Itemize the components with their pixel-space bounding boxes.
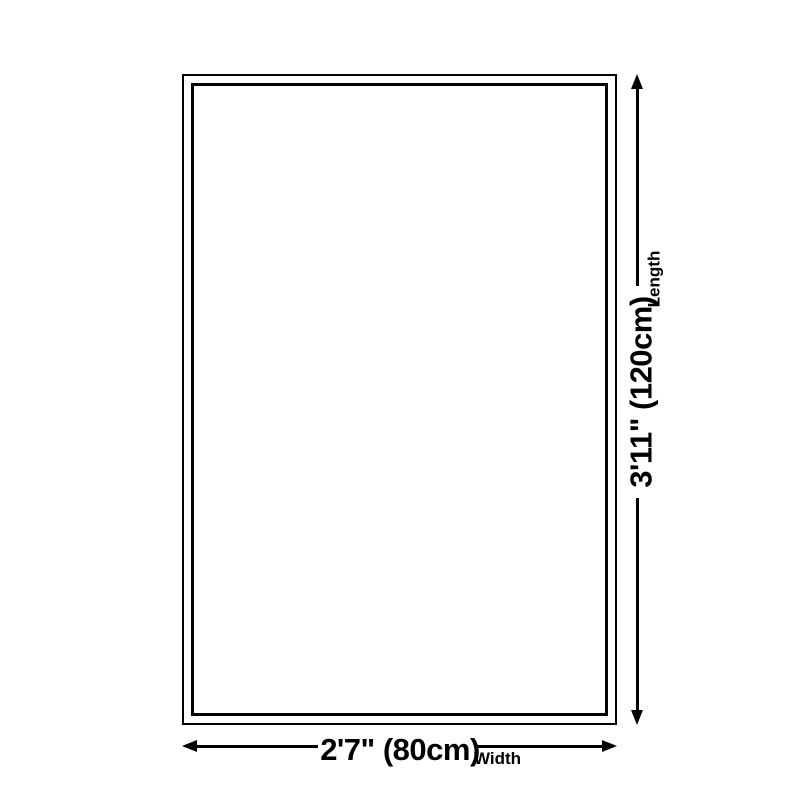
length-arrow-line-top bbox=[636, 86, 639, 286]
dimension-diagram: 3'11" (120cm) Length 2'7" (80cm) Width bbox=[0, 0, 800, 800]
width-value-label: 2'7" (80cm) bbox=[320, 734, 480, 765]
length-caption-label: Length bbox=[646, 251, 663, 308]
length-value-label: 3'11" (120cm) bbox=[626, 296, 657, 487]
width-caption-label: Width bbox=[474, 750, 521, 767]
width-arrow-line-right bbox=[477, 745, 605, 748]
rug-outline-inner bbox=[191, 83, 608, 716]
width-arrow-line-left bbox=[194, 745, 318, 748]
length-arrow-line-bottom bbox=[636, 498, 639, 713]
rug-outline-outer bbox=[182, 74, 617, 725]
arrow-down-icon bbox=[631, 710, 643, 725]
arrow-right-icon bbox=[602, 740, 617, 752]
